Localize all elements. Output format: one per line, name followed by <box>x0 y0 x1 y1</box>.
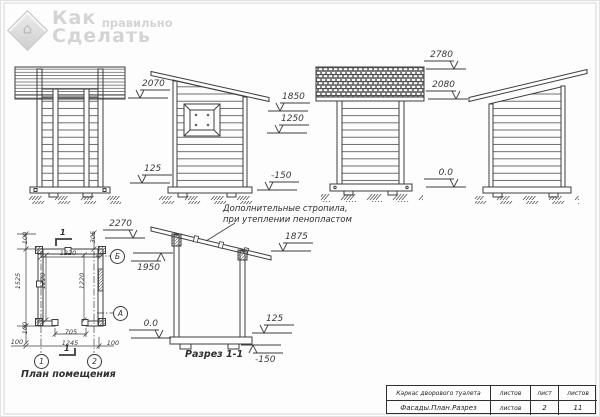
level-mark-label: 1875 <box>285 232 315 242</box>
title-block-v1: листов <box>491 401 531 415</box>
level-mark-label: 125 <box>144 164 174 174</box>
plan-dimension-label: 100 <box>98 339 128 347</box>
plan-dimension-label: 1220 <box>78 268 86 294</box>
level-mark-label: -150 <box>255 355 285 365</box>
rear-elevation-drawing <box>316 67 424 202</box>
plan-dimension-label: 305 <box>89 224 97 250</box>
title-block-project: Каркас дворового туалета <box>387 386 491 401</box>
level-mark-label: -150 <box>271 171 301 181</box>
title-block-sheet-count: 11 <box>559 401 597 415</box>
level-mark-label: 1950 <box>130 263 160 273</box>
plan-dimension-label: 1525 <box>14 268 22 294</box>
rafters-annotation: Дополнительные стропила, при утеплении п… <box>223 204 352 226</box>
level-mark-label: 0.0 <box>128 319 158 329</box>
plan-title: План помещения <box>21 369 116 380</box>
plan-dimension-label: 100 <box>2 338 32 346</box>
axis-circle-a: А <box>113 306 128 321</box>
title-block-h1: листов <box>491 386 531 401</box>
annotation-line-2: при утеплении пенопластом <box>223 215 352 226</box>
logo-text: Как правильно Сделать <box>52 9 173 45</box>
logo-diamond-icon: ⌂ <box>7 10 48 51</box>
title-block-h3: листов <box>559 386 597 401</box>
plan-dimension-label: 100 <box>21 225 29 251</box>
title-block-sheet-number: 2 <box>531 401 559 415</box>
site-logo: ⌂ Как правильно Сделать <box>7 9 173 45</box>
level-mark-label: 2070 <box>142 79 172 89</box>
annotation-line-1: Дополнительные стропила, <box>223 204 352 215</box>
axis-circle-1: 1 <box>34 354 49 369</box>
title-block-h2: лист <box>531 386 559 401</box>
level-mark-label: 0.0 <box>423 168 453 178</box>
level-mark-label: 2780 <box>423 50 453 60</box>
plan-dimension-label: 1245 <box>55 339 85 347</box>
level-mark-label: 2080 <box>425 80 455 90</box>
logo-word-2: правильно <box>102 16 173 30</box>
level-mark-label: 1850 <box>282 92 312 102</box>
section-title: Разрез 1-1 <box>185 349 243 360</box>
axis-circle-b: Б <box>110 249 125 264</box>
side-elevation-plain-drawing <box>469 70 587 205</box>
cut-mark-label-top: 1 <box>60 228 66 237</box>
blueprint-sheet: ⌂ Как правильно Сделать Дополнительные с… <box>0 0 600 417</box>
plan-dimension-label: 705 <box>56 328 86 336</box>
title-block: Каркас дворового туалета листов лист лис… <box>386 385 596 414</box>
title-block-sheet-name: Фасады.План.Разрез <box>387 401 491 415</box>
section-drawing <box>151 223 271 349</box>
house-icon: ⌂ <box>19 21 36 38</box>
level-mark-label: 2270 <box>102 219 132 229</box>
level-mark-label: 1250 <box>281 114 311 124</box>
level-mark-label: 125 <box>266 314 296 324</box>
plan-dimension-label: 1220 <box>53 249 83 257</box>
logo-word-3: Сделать <box>52 28 173 45</box>
axis-circle-2: 2 <box>87 354 102 369</box>
front-elevation-drawing <box>15 67 125 204</box>
side-elevation-window-drawing <box>151 72 269 205</box>
plan-dimension-label: 1220 <box>39 268 47 294</box>
